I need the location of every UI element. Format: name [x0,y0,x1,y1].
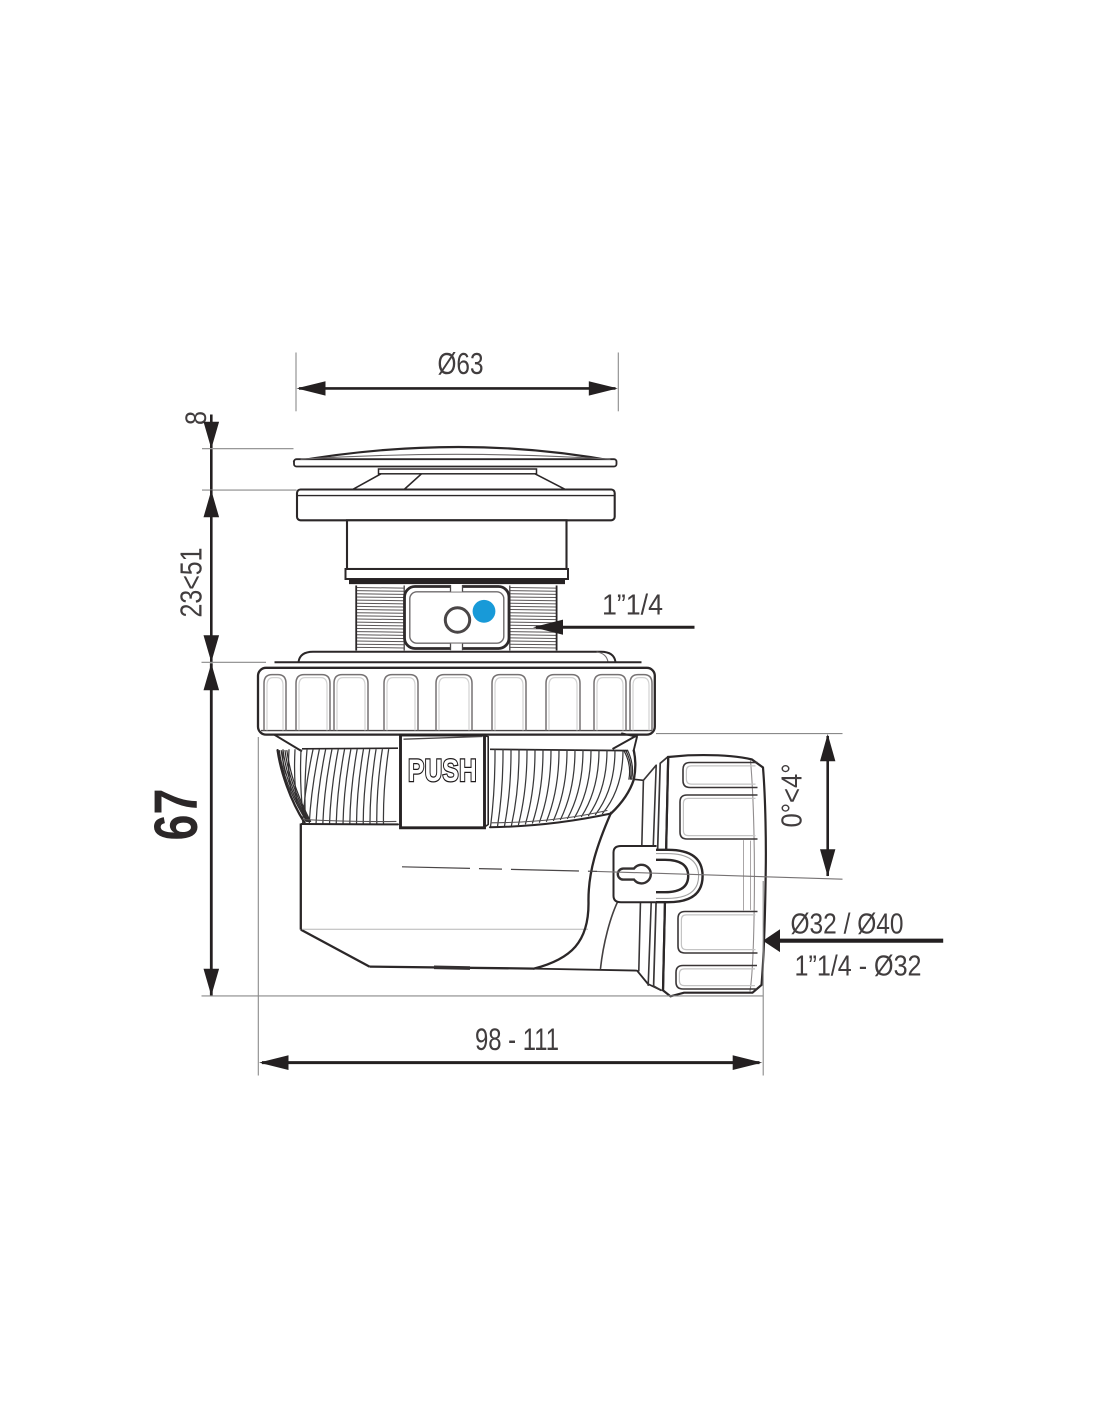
svg-text:0°<4°: 0°<4° [777,764,809,828]
svg-text:67: 67 [142,789,210,841]
svg-text:98 - 111: 98 - 111 [475,1021,559,1057]
svg-text:1”1/4: 1”1/4 [602,590,663,622]
svg-text:23<51: 23<51 [175,548,209,618]
svg-text:Ø63: Ø63 [438,347,484,381]
svg-text:1”1/4 - Ø32: 1”1/4 - Ø32 [795,951,922,983]
svg-text:PUSH: PUSH [408,752,477,788]
svg-text:Ø32 / Ø40: Ø32 / Ø40 [791,909,904,941]
